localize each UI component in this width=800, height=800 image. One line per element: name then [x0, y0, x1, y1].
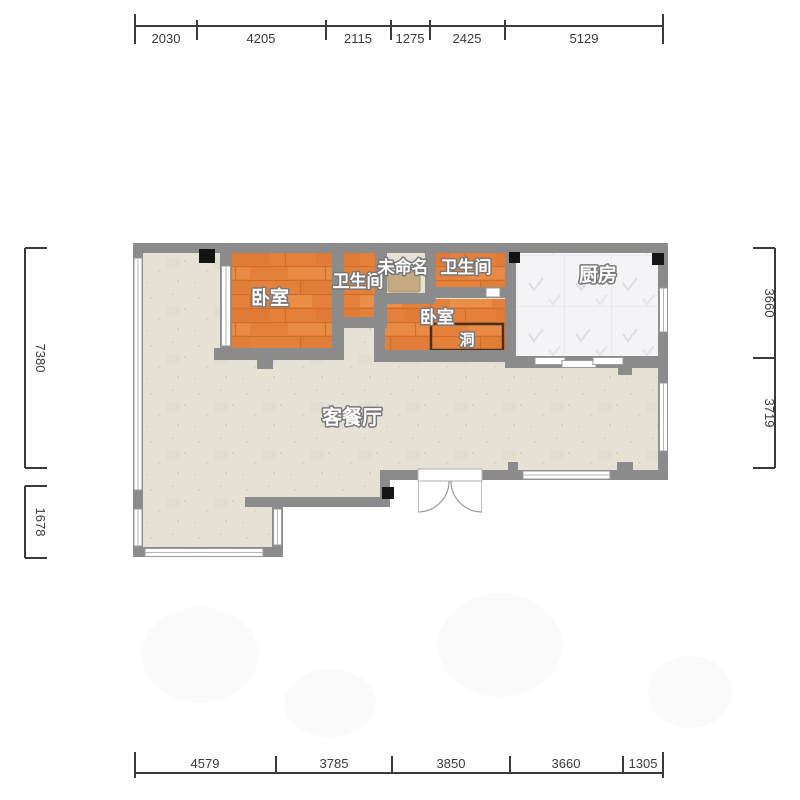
column-marker: [199, 249, 215, 263]
dim-bottom-0: 4579: [191, 756, 220, 771]
dimension-right: 3660 3719: [753, 248, 777, 468]
watermark: [142, 593, 732, 737]
column-marker: [382, 487, 394, 499]
floor-plan-canvas: 卧室 卫生间 未命名 卫生间 厨房 卧室 洞 客餐厅 2030 4205 211…: [0, 0, 800, 800]
column-marker: [509, 252, 520, 263]
living-dining-label: 客餐厅: [321, 405, 382, 429]
window: [660, 288, 668, 332]
hole-label: 洞: [459, 332, 474, 349]
wall-stub: [508, 462, 518, 471]
bathroom2-label: 卫生间: [441, 257, 492, 277]
wall-segment: [245, 497, 390, 507]
wall-stub: [257, 360, 273, 369]
window: [274, 509, 282, 545]
dim-top-1: 4205: [247, 31, 276, 46]
wall-opening: [486, 288, 500, 297]
entry-door: [418, 469, 482, 512]
dim-left-1: 1678: [33, 508, 48, 537]
window: [134, 509, 142, 546]
dim-right-0: 3660: [762, 289, 777, 318]
bedroom1-label: 卧室: [251, 286, 289, 309]
wall-segment: [332, 243, 344, 360]
dim-bottom-4: 1305: [629, 756, 658, 771]
floor-plan-page: 卧室 卫生间 未命名 卫生间 厨房 卧室 洞 客餐厅 2030 4205 211…: [0, 0, 800, 800]
window: [222, 266, 231, 346]
wall-stub: [618, 368, 632, 375]
wall-segment: [214, 348, 344, 360]
dim-top-5: 5129: [570, 31, 599, 46]
dimension-top: 2030 4205 2115 1275 2425 5129: [135, 14, 663, 46]
kitchen-label: 厨房: [579, 263, 617, 286]
dim-top-0: 2030: [152, 31, 181, 46]
bathroom1-label: 卫生间: [333, 271, 384, 291]
bedroom2-label: 卧室: [420, 307, 454, 327]
window: [523, 471, 610, 479]
window: [145, 549, 263, 557]
window: [134, 258, 142, 490]
dim-bottom-3: 3660: [552, 756, 581, 771]
dim-right-1: 3719: [762, 399, 777, 428]
dimension-left: 7380 1678: [25, 248, 48, 558]
wall-stub: [617, 462, 633, 471]
dim-top-4: 2425: [453, 31, 482, 46]
dim-bottom-1: 3785: [320, 756, 349, 771]
wall-segment: [374, 350, 505, 362]
dim-bottom-2: 3850: [437, 756, 466, 771]
dim-left-0: 7380: [33, 344, 48, 373]
column-marker: [652, 253, 664, 265]
unnamed-label: 未命名: [377, 257, 429, 277]
dim-top-3: 1275: [396, 31, 425, 46]
window: [660, 383, 668, 451]
dimension-bottom: 4579 3785 3850 3660 1305: [135, 752, 663, 778]
dim-top-2: 2115: [344, 31, 372, 46]
